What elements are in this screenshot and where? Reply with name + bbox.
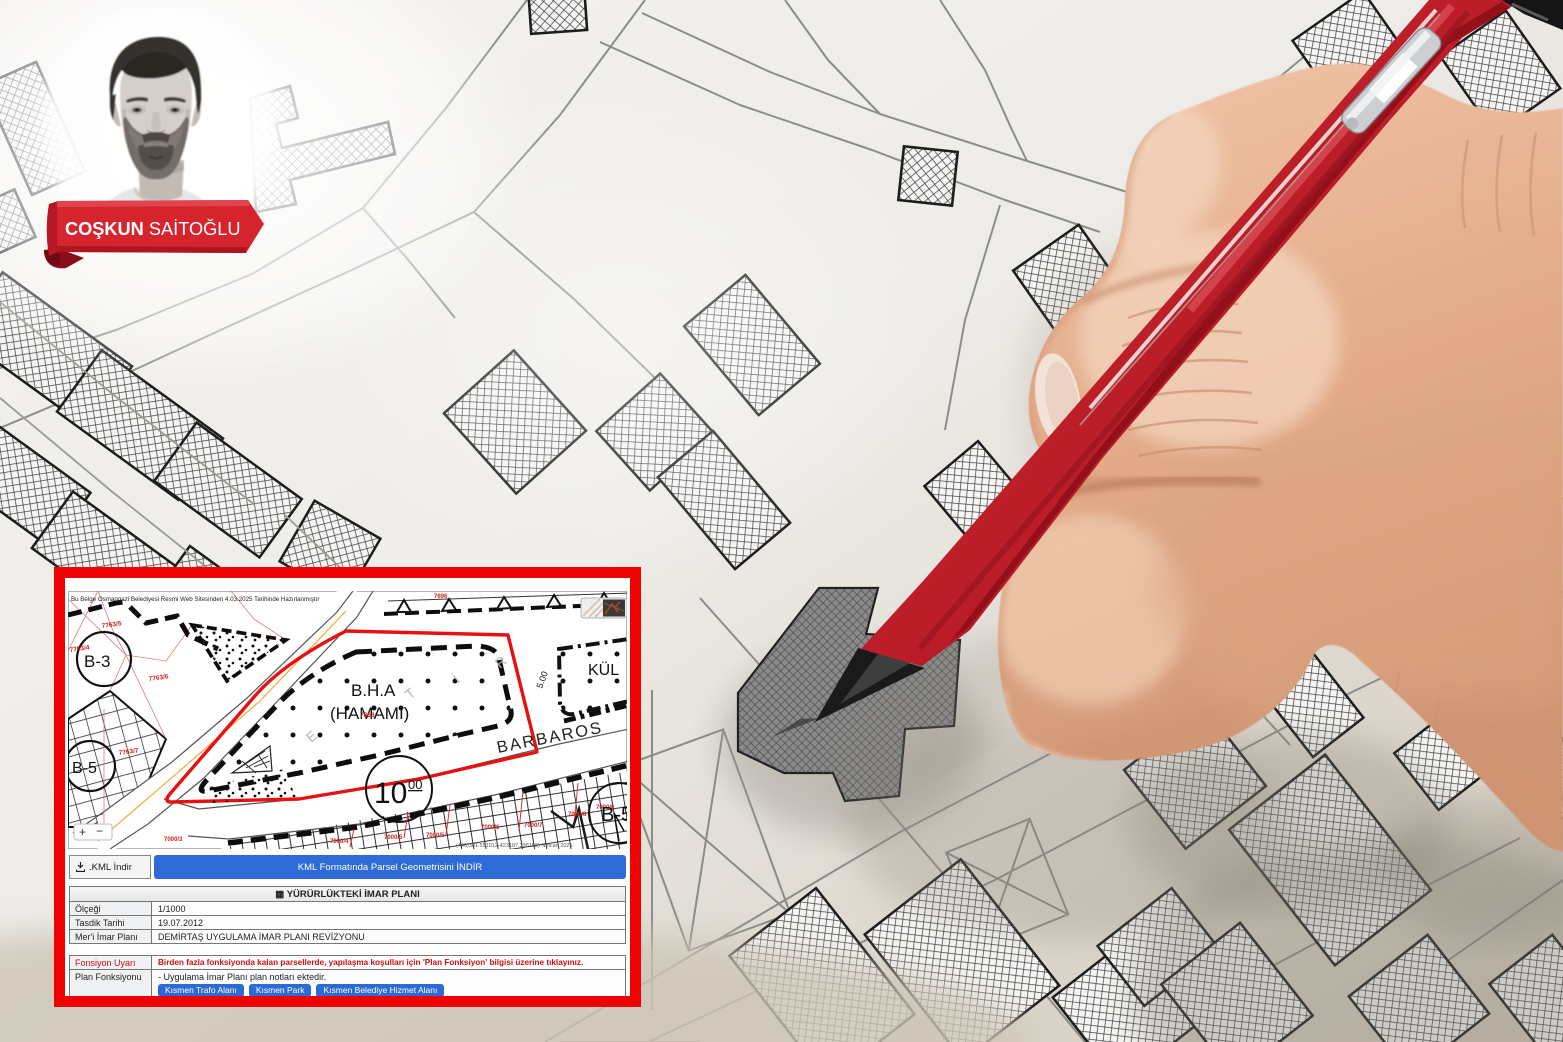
svg-text:−: − [96, 824, 103, 838]
svg-text:7000/6: 7000/6 [481, 825, 500, 831]
svg-text:00: 00 [408, 777, 422, 792]
svg-text:KÜL: KÜL [588, 661, 619, 679]
svg-text:7000/4: 7000/4 [330, 839, 349, 845]
svg-text:B-3: B-3 [84, 652, 110, 671]
svg-text:COŞKUN SAİTOĞLU: COŞKUN SAİTOĞLU [65, 218, 241, 239]
svg-text:7868: 7868 [360, 712, 375, 719]
svg-text:7000/5: 7000/5 [384, 835, 403, 841]
svg-text:7696: 7696 [434, 594, 448, 600]
svg-text:7000/7: 7000/7 [524, 823, 543, 829]
svg-text:(446)381.551012-423187.398158): (446)381.551012-423187.398158) Netcad 20… [456, 843, 573, 849]
svg-text:+: + [79, 825, 86, 839]
svg-text:B.H.A: B.H.A [351, 681, 396, 700]
svg-text:7000/8: 7000/8 [568, 812, 587, 818]
svg-text:B-5: B-5 [72, 760, 97, 777]
svg-text:10: 10 [374, 777, 407, 810]
svg-text:7000/3: 7000/3 [164, 837, 183, 843]
svg-text:7000/5: 7000/5 [426, 833, 445, 839]
svg-text:Bu Belge Osmangazi Belediyesi: Bu Belge Osmangazi Belediyesi Resmi Web … [71, 596, 319, 603]
